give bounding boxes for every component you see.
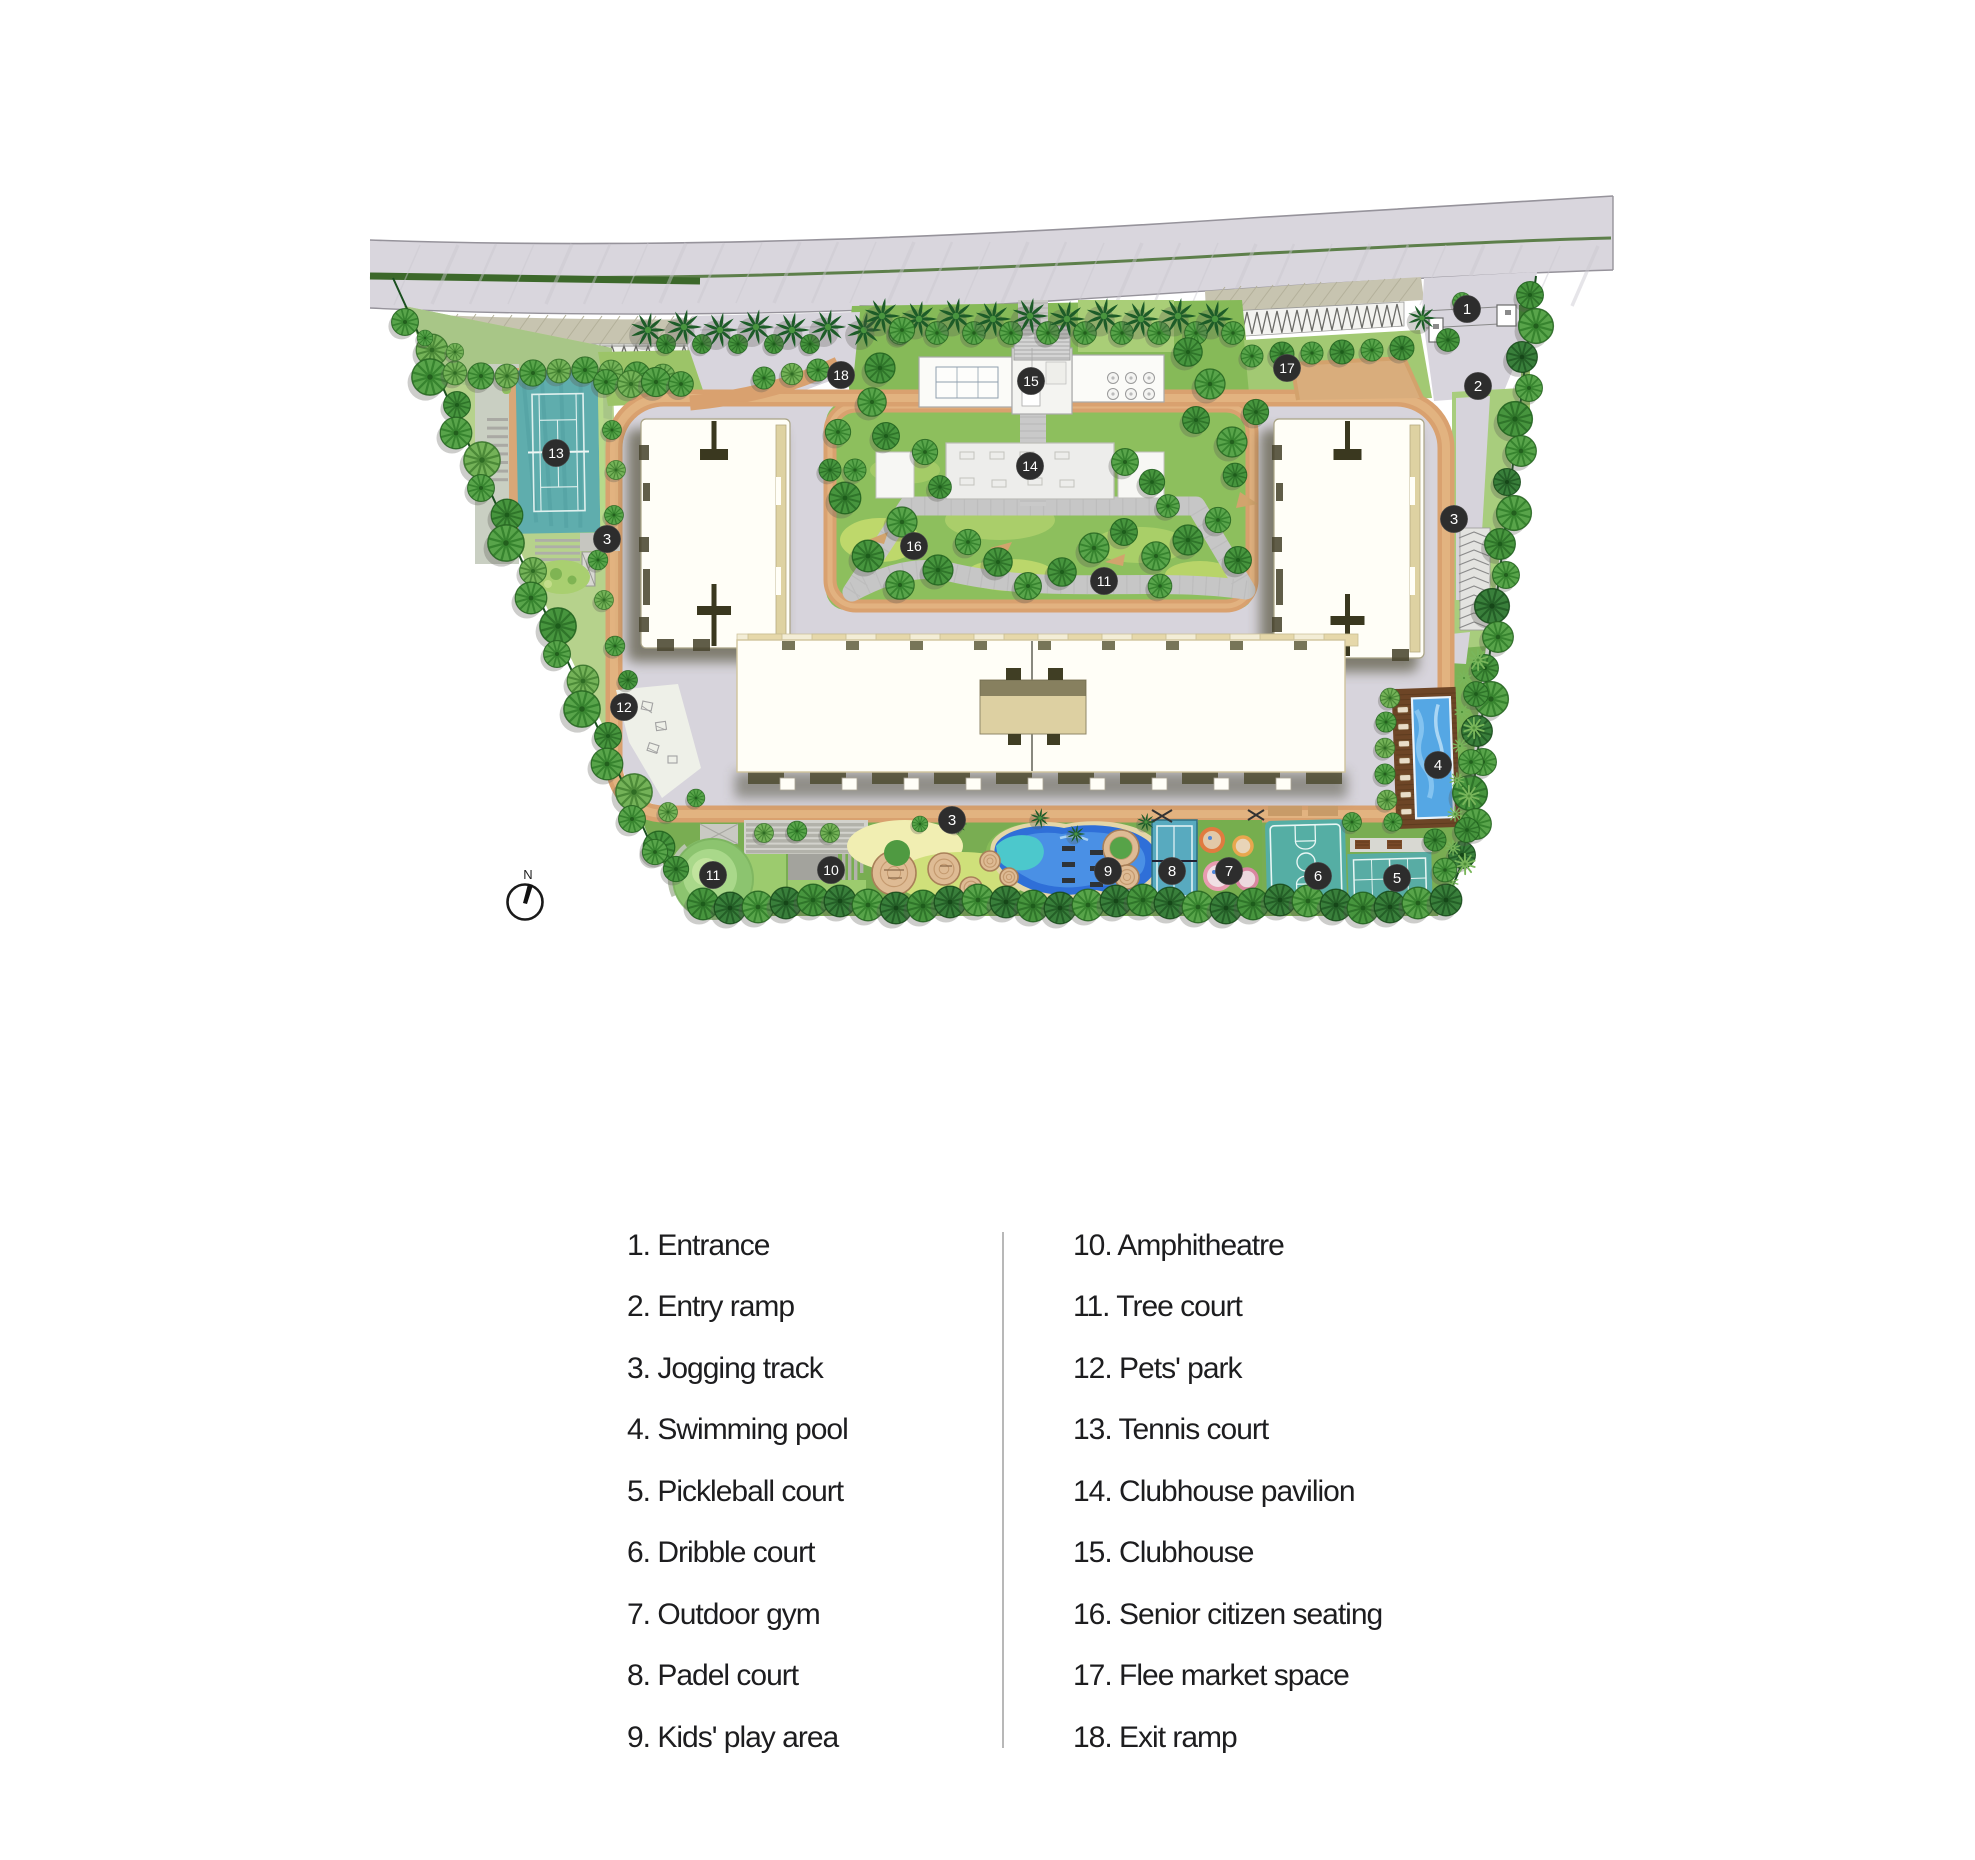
svg-text:17: 17 — [1279, 360, 1295, 376]
svg-text:12: 12 — [616, 699, 632, 715]
svg-text:5. Pickleball court: 5. Pickleball court — [627, 1475, 845, 1508]
svg-text:4. Swimming pool: 4. Swimming pool — [627, 1413, 848, 1446]
svg-text:8. Padel court: 8. Padel court — [627, 1659, 800, 1692]
svg-text:3: 3 — [1450, 511, 1458, 528]
svg-text:9. Kids' play area: 9. Kids' play area — [627, 1721, 840, 1754]
svg-text:16. Senior citizen seating: 16. Senior citizen seating — [1073, 1598, 1382, 1631]
svg-text:7: 7 — [1225, 863, 1233, 880]
svg-text:6: 6 — [1314, 868, 1322, 885]
svg-text:N: N — [523, 867, 532, 882]
svg-text:18. Exit ramp: 18. Exit ramp — [1073, 1721, 1237, 1754]
svg-text:12. Pets' park: 12. Pets' park — [1073, 1352, 1243, 1385]
svg-text:10: 10 — [823, 862, 839, 878]
svg-text:6. Dribble court: 6. Dribble court — [627, 1536, 816, 1569]
svg-text:5: 5 — [1393, 870, 1401, 887]
svg-text:2: 2 — [1474, 378, 1482, 395]
svg-text:1: 1 — [1463, 301, 1471, 318]
svg-text:13: 13 — [548, 445, 564, 461]
svg-text:3: 3 — [603, 531, 611, 548]
svg-text:16: 16 — [906, 538, 922, 554]
svg-text:18: 18 — [833, 367, 849, 383]
svg-text:8: 8 — [1168, 863, 1176, 880]
svg-text:4: 4 — [1434, 757, 1442, 774]
svg-text:11. Tree court: 11. Tree court — [1073, 1290, 1244, 1323]
svg-text:1. Entrance: 1. Entrance — [627, 1229, 770, 1262]
svg-text:2. Entry ramp: 2. Entry ramp — [627, 1290, 794, 1323]
svg-text:15. Clubhouse: 15. Clubhouse — [1073, 1536, 1254, 1569]
svg-text:11: 11 — [1097, 573, 1112, 589]
svg-text:14: 14 — [1022, 458, 1038, 474]
svg-text:17. Flee market space: 17. Flee market space — [1073, 1659, 1349, 1692]
svg-text:3: 3 — [948, 812, 956, 829]
svg-text:3. Jogging track: 3. Jogging track — [627, 1352, 825, 1385]
svg-text:9: 9 — [1104, 863, 1112, 880]
svg-text:15: 15 — [1023, 373, 1039, 389]
svg-text:14. Clubhouse pavilion: 14. Clubhouse pavilion — [1073, 1475, 1355, 1508]
svg-text:7. Outdoor gym: 7. Outdoor gym — [627, 1598, 820, 1631]
svg-text:11: 11 — [706, 867, 721, 883]
svg-text:13. Tennis court: 13. Tennis court — [1073, 1413, 1270, 1446]
svg-text:10. Amphitheatre: 10. Amphitheatre — [1073, 1229, 1284, 1262]
